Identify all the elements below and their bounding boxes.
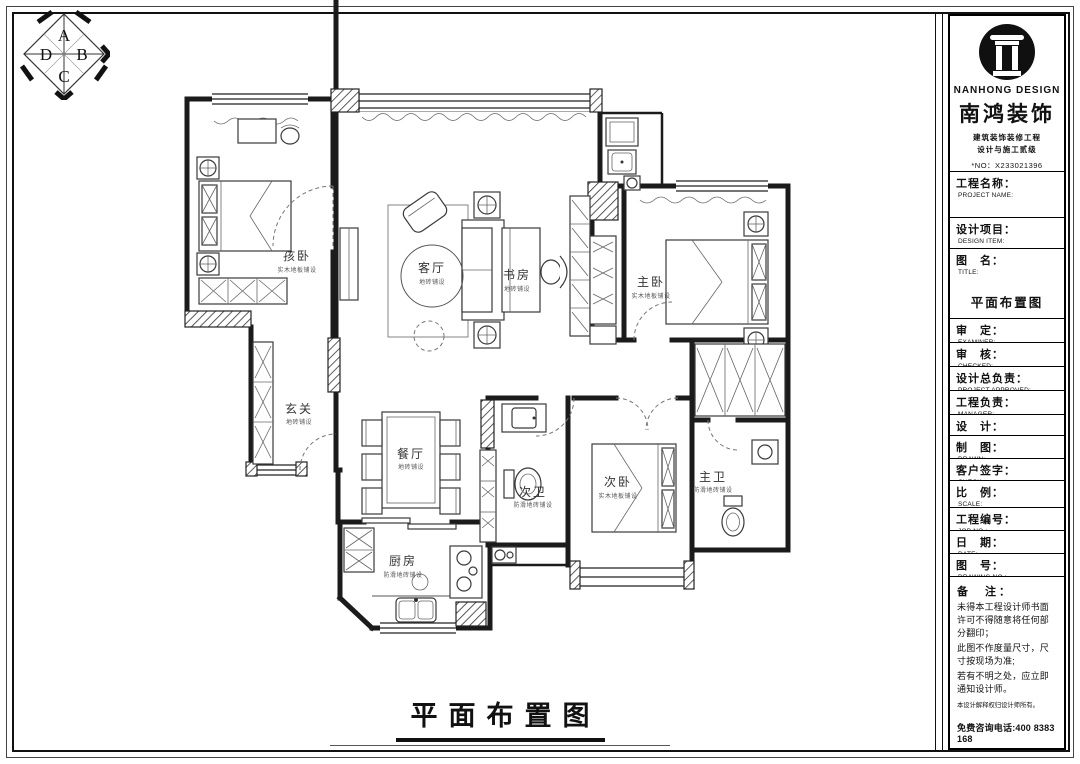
- field-label-cn: 工程编号：: [956, 511, 1058, 527]
- field-row-project-name: 工程名称： PROJECT NAME:: [950, 171, 1064, 217]
- wash-nook: [492, 547, 516, 563]
- field-label-cn: 制 图：: [956, 439, 1058, 455]
- room-label-second-bedroom: 次卧: [604, 475, 632, 489]
- field-row-manager: 工程负责： MANAGER:: [950, 390, 1064, 414]
- study-set: [502, 196, 590, 336]
- room-note-second-bath: 防滑地砖铺设: [513, 501, 552, 509]
- field-row-examiner: 审 定： EXAMINER:: [950, 318, 1064, 342]
- notes-section: 备 注： 未得本工程设计师书面许可不得随意将任何部分翻印； 此图不作度量尺寸，尺…: [950, 576, 1064, 748]
- room-label-master-bath: 主卫: [699, 470, 727, 484]
- second-bed: [592, 398, 678, 532]
- field-label-cn: 图 名：: [956, 252, 1058, 268]
- title-block: NANHONG DESIGN 南鸿装饰 建筑装饰装修工程 设计与施工贰级 *NO…: [948, 14, 1066, 750]
- field-label-en: DESIGN ITEM:: [956, 238, 1058, 245]
- field-row-drawing-no: 图 号： DRAWING NO.:: [950, 553, 1064, 576]
- field-row-scale: 比 例： SCALE:: [950, 480, 1064, 507]
- floor-plan: 孩卧 实木地板铺设 客厅 地砖铺设 书房 地砖铺设 主卧 实木地板铺设 玄关 地…: [0, 0, 1080, 764]
- hotline-phone: 免费咨询电话:400 8383 168: [957, 721, 1058, 744]
- field-row-title: 图 名： TITLE: 平面布置图: [950, 248, 1064, 319]
- field-row-job-no: 工程编号： JOB NO.:: [950, 507, 1064, 529]
- room-note-kitchen: 防滑地砖铺设: [383, 571, 422, 579]
- note-copyright: 本设计解释权归设计师所有。: [957, 700, 1058, 709]
- brand-subtitle-1: 建筑装饰装修工程: [950, 132, 1064, 143]
- field-label-cn: 审 核：: [956, 346, 1058, 362]
- room-note-dining: 地砖铺设: [398, 463, 424, 471]
- room-note-child-bedroom: 实木地板铺设: [277, 266, 316, 274]
- company-logo-section: NANHONG DESIGN 南鸿装饰 建筑装饰装修工程 设计与施工贰级 *NO…: [950, 16, 1064, 171]
- room-label-dining: 餐厅: [397, 446, 425, 461]
- field-row-drawn: 制 图： DRAWN:: [950, 435, 1064, 457]
- room-note-foyer: 地砖铺设: [286, 418, 312, 426]
- laundry-fixtures: [606, 118, 640, 190]
- field-label-en: TITLE:: [956, 269, 1058, 276]
- room-label-kitchen: 厨房: [389, 553, 417, 568]
- field-label-cn: 客户签字：: [956, 462, 1058, 478]
- field-label-cn: 设 计：: [956, 418, 1058, 434]
- notes-title: 备 注：: [957, 583, 1058, 599]
- field-label-cn: 工程负责：: [956, 394, 1058, 410]
- brand-name-en: NANHONG DESIGN: [950, 85, 1064, 96]
- room-note-master-bedroom: 实木地板铺设: [631, 292, 670, 300]
- child-desk: [238, 119, 299, 144]
- field-value-title: 平面布置图: [956, 292, 1058, 311]
- field-label-cn: 工程名称：: [956, 175, 1058, 191]
- room-note-study: 地砖铺设: [504, 285, 530, 293]
- room-note-living-room: 地砖铺设: [419, 278, 445, 286]
- field-label-cn: 设计项目：: [956, 221, 1058, 237]
- field-row-design-item: 设计项目： DESIGN ITEM:: [950, 217, 1064, 248]
- brand-license-no: *NO：X233021396: [950, 160, 1064, 171]
- brand-name-cn: 南鸿装饰: [950, 98, 1064, 128]
- child-wardrobe: [199, 278, 287, 304]
- drawing-caption-underline: 平面布置图: [330, 694, 670, 746]
- field-row-checked: 审 核： CHECKED:: [950, 342, 1064, 366]
- field-label-cn: 比 例：: [956, 484, 1058, 500]
- note-line-3: 若有不明之处，应立即通知设计师。: [957, 670, 1058, 696]
- shoe-cabinet-strip: [480, 450, 496, 542]
- child-bed: [197, 157, 291, 275]
- field-label-cn: 审 定：: [956, 322, 1058, 338]
- field-row-date: 日 期： DATE:: [950, 530, 1064, 553]
- room-label-master-bedroom: 主卧: [637, 275, 665, 289]
- room-label-child-bedroom: 孩卧: [283, 249, 311, 263]
- room-label-second-bath: 次卫: [519, 485, 547, 499]
- master-closet-row: [695, 344, 785, 416]
- roman-column-icon: [979, 24, 1035, 80]
- field-row-project-approved: 设计总负责： PROJECT APPROVED:: [950, 366, 1064, 390]
- master-wardrobe: [590, 236, 616, 344]
- note-line-2: 此图不作度量尺寸，尺寸按现场为准;: [957, 642, 1058, 668]
- room-label-study: 书房: [503, 267, 531, 282]
- field-label-cn: 图 号：: [956, 557, 1058, 573]
- master-bed: [666, 212, 768, 352]
- field-label-cn: 日 期：: [956, 534, 1058, 550]
- note-line-1: 未得本工程设计师书面许可不得随意将任何部分翻印；: [957, 601, 1058, 640]
- room-label-foyer: 玄关: [285, 401, 313, 416]
- room-note-master-bath: 防滑地砖铺设: [693, 486, 732, 494]
- drawing-caption: 平面布置图: [396, 694, 605, 742]
- room-label-living-room: 客厅: [418, 260, 446, 275]
- field-label-cn: 设计总负责：: [956, 370, 1058, 386]
- field-label-en: PROJECT NAME:: [956, 192, 1058, 199]
- field-row-client-signature: 客户签字： CHECK:: [950, 458, 1064, 480]
- room-note-second-bedroom: 实木地板铺设: [598, 492, 637, 500]
- field-row-designer: 设 计： DESIGNER:: [950, 414, 1064, 435]
- drawing-sheet: A B C D: [0, 0, 1080, 764]
- dining-set: [362, 412, 460, 514]
- brand-subtitle-2: 设计与施工贰级: [950, 144, 1064, 155]
